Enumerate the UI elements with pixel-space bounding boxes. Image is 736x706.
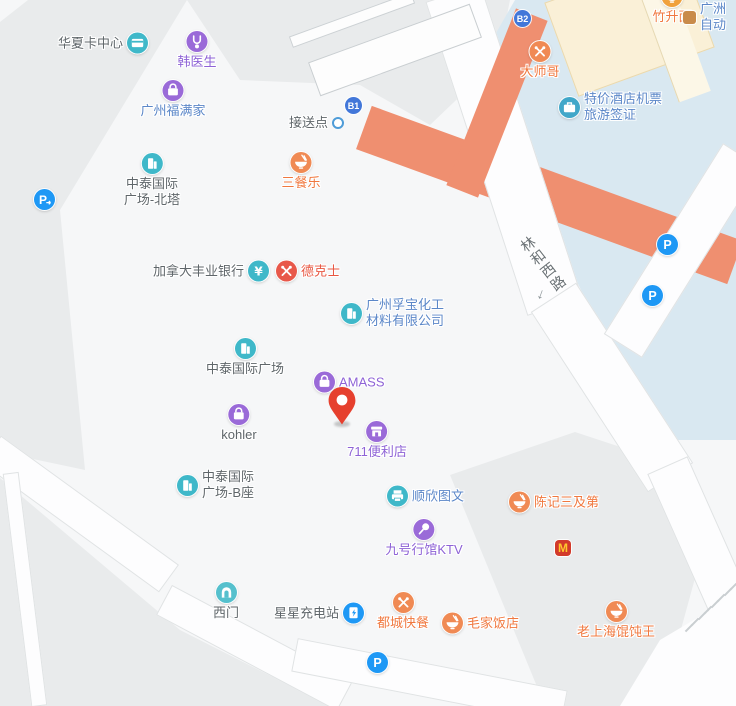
svg-text:P: P xyxy=(648,289,656,303)
poi-label: 接送点 xyxy=(289,115,328,131)
location-pin[interactable] xyxy=(327,386,357,431)
kohler[interactable]: kohler xyxy=(221,404,256,443)
poi-label: 华夏卡中心 xyxy=(58,35,123,51)
poi-label: 韩医生 xyxy=(177,54,216,70)
bag-icon xyxy=(162,80,183,101)
poi-label: 都城快餐 xyxy=(377,615,429,631)
poi-label: 广洲 自动 xyxy=(700,1,726,33)
building-icon xyxy=(341,303,362,324)
shop-icon xyxy=(683,11,696,24)
svg-text:P: P xyxy=(373,656,381,670)
poi-label: 星星充电站 xyxy=(274,605,339,621)
map-canvas[interactable]: 林和西路↓ 华夏卡中心韩医生广州福满家中泰国际 广场-北塔P接送点B1三餐乐B2… xyxy=(0,0,736,706)
dicos[interactable]: 德克士 xyxy=(276,261,340,282)
spot-dot-icon xyxy=(332,117,344,129)
zhongtai-north-tower[interactable]: 中泰国际 广场-北塔 xyxy=(124,153,180,208)
subway-exit-badge-icon: B1 xyxy=(345,97,362,114)
parking-arrow-icon: P xyxy=(34,189,55,210)
poi-label: 711便利店 xyxy=(347,444,407,460)
poi-label: 顺欣图文 xyxy=(412,488,464,504)
yen-icon: ¥ xyxy=(248,261,269,282)
west-gate[interactable]: 西门 xyxy=(213,582,239,621)
poi-label: kohler xyxy=(221,427,256,443)
poi-label: 中泰国际 广场-B座 xyxy=(202,469,254,501)
maojia-restaurant[interactable]: 毛家饭店 xyxy=(442,613,519,634)
parking-icon: P xyxy=(367,652,388,673)
parking-icon: P xyxy=(642,285,663,306)
store-icon xyxy=(366,421,387,442)
bowl-icon xyxy=(442,613,463,634)
han-doctor[interactable]: 韩医生 xyxy=(177,31,216,70)
poi-label: 九号行馆KTV xyxy=(385,542,462,558)
building-icon xyxy=(234,338,255,359)
mic-icon xyxy=(413,519,434,540)
medical-icon xyxy=(186,31,207,52)
building-icon xyxy=(177,475,198,496)
svg-text:¥: ¥ xyxy=(254,265,263,279)
parking-2[interactable]: P xyxy=(642,285,663,306)
poi-label: 加拿大丰业银行 xyxy=(153,263,244,279)
tejia-hotel-tickets[interactable]: 特价酒店机票 旅游签证 xyxy=(559,91,662,123)
guangzhou-fumanjia[interactable]: 广州福满家 xyxy=(140,80,205,119)
poi-label: 老上海馄饨王 xyxy=(577,624,655,640)
bowl-icon xyxy=(661,0,682,7)
card-icon xyxy=(127,33,148,54)
subway-exit-badge-icon: B2 xyxy=(514,10,531,27)
zhongtai-plaza[interactable]: 中泰国际广场 xyxy=(206,338,284,377)
exit-b1[interactable]: B1 xyxy=(345,97,362,114)
parking-3[interactable]: P xyxy=(367,652,388,673)
pickup-point[interactable]: 接送点 xyxy=(289,115,344,131)
bag-icon xyxy=(228,404,249,425)
utensils-icon xyxy=(276,261,297,282)
ev-icon xyxy=(343,603,364,624)
mcdonalds[interactable]: M xyxy=(555,540,571,556)
laoshanghai-wonton[interactable]: 老上海馄饨王 xyxy=(577,601,655,640)
sancanle[interactable]: 三餐乐 xyxy=(281,152,320,191)
poi-label: 毛家饭店 xyxy=(467,615,519,631)
utensils-icon xyxy=(392,592,413,613)
fubao-chemical[interactable]: 广州孚宝化工 材料有限公司 xyxy=(341,297,444,329)
mcdonalds-icon: M xyxy=(555,540,571,556)
clipped-poi[interactable]: 广洲 自动 xyxy=(683,1,726,33)
parking-1[interactable]: P xyxy=(657,234,678,255)
scotiabank[interactable]: 加拿大丰业银行¥ xyxy=(153,261,269,282)
parking-entrance[interactable]: P xyxy=(34,189,55,210)
poi-label: 三餐乐 xyxy=(281,175,320,191)
xingxing-ev-charging[interactable]: 星星充电站 xyxy=(274,603,364,624)
zhongtai-tower-b[interactable]: 中泰国际 广场-B座 xyxy=(177,469,254,501)
poi-label: 陈记三及第 xyxy=(534,494,599,510)
poi-label: 广州孚宝化工 材料有限公司 xyxy=(366,297,444,329)
jiuhao-ktv[interactable]: 九号行馆KTV xyxy=(385,519,462,558)
svg-text:P: P xyxy=(39,193,47,207)
svg-text:P: P xyxy=(663,238,671,252)
poi-label: 中泰国际广场 xyxy=(206,361,284,377)
poi-label: 西门 xyxy=(213,605,239,621)
building-icon xyxy=(142,153,163,174)
utensils-icon xyxy=(529,41,550,62)
dashige[interactable]: 大师哥 xyxy=(520,41,559,80)
poi-label: 广州福满家 xyxy=(140,103,205,119)
suitcase-icon xyxy=(559,97,580,118)
parking-icon: P xyxy=(657,234,678,255)
huaxia-card-center[interactable]: 华夏卡中心 xyxy=(58,33,148,54)
bowl-icon xyxy=(605,601,626,622)
printer-icon xyxy=(387,486,408,507)
bowl-icon xyxy=(290,152,311,173)
gate-icon xyxy=(215,582,236,603)
chenji-sanjidi[interactable]: 陈记三及第 xyxy=(509,492,599,513)
ducheng-fastfood[interactable]: 都城快餐 xyxy=(377,592,429,631)
exit-b2[interactable]: B2 xyxy=(514,10,531,27)
poi-label: 特价酒店机票 旅游签证 xyxy=(584,91,662,123)
shunxin-print[interactable]: 顺欣图文 xyxy=(387,486,464,507)
bowl-icon xyxy=(509,492,530,513)
poi-label: 大师哥 xyxy=(520,64,559,80)
poi-label: 中泰国际 广场-北塔 xyxy=(124,176,180,208)
poi-label: 德克士 xyxy=(301,263,340,279)
